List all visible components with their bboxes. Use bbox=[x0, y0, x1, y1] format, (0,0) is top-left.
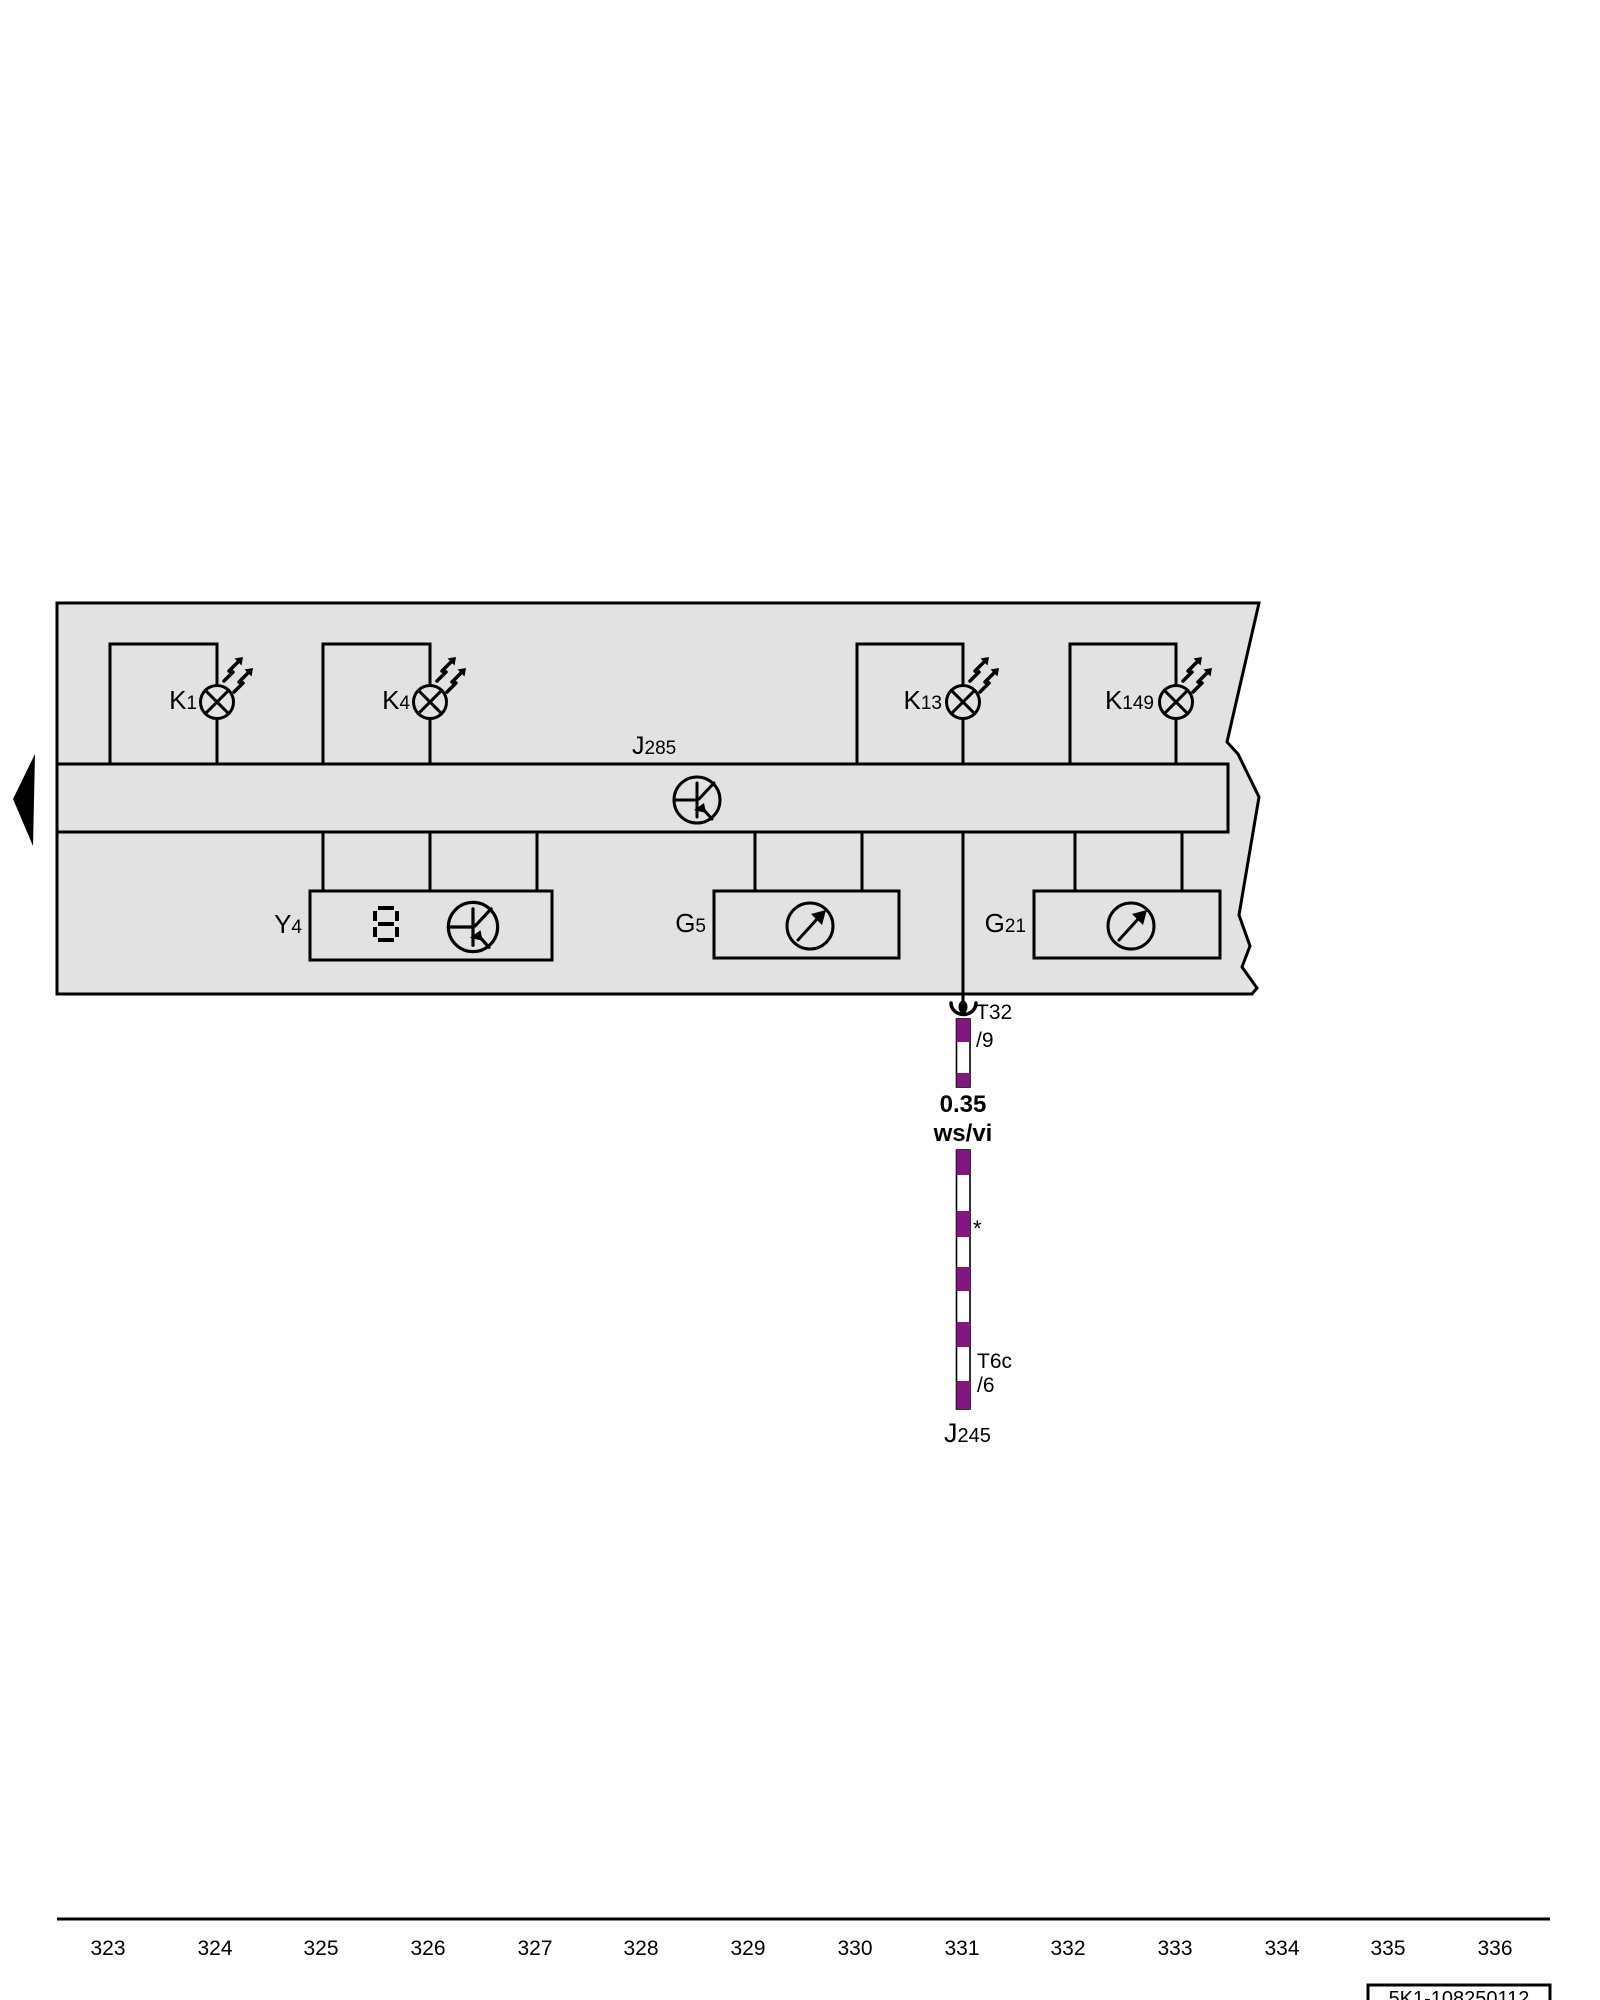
connector-top-pin: /9 bbox=[976, 1029, 994, 1052]
wiring-diagram-page: K1 K4 K13 K149 J285 Y4 G5 G21 T32 /9 0.3… bbox=[0, 0, 1600, 2000]
lamp-k1-label: K1 bbox=[77, 686, 197, 715]
display-unit-y4 bbox=[310, 891, 552, 960]
wire-footnote-mark: * bbox=[973, 1217, 982, 1241]
wire-spec-label: 0.35 ws/vi bbox=[893, 1090, 1033, 1148]
track-number: 323 bbox=[68, 1937, 148, 1960]
gauge-needle-icon bbox=[1108, 903, 1154, 949]
track-number: 333 bbox=[1135, 1937, 1215, 1960]
track-number: 335 bbox=[1348, 1937, 1428, 1960]
track-number: 328 bbox=[601, 1937, 681, 1960]
display-unit-label: Y4 bbox=[182, 910, 302, 939]
wiring-diagram-canvas bbox=[0, 0, 1600, 2000]
track-number: 326 bbox=[388, 1937, 468, 1960]
track-number: 327 bbox=[495, 1937, 575, 1960]
connector-socket-icon bbox=[951, 1001, 976, 1015]
connector-bottom-pin: /6 bbox=[977, 1374, 995, 1397]
connector-bottom-name: T6c bbox=[977, 1350, 1012, 1373]
gauge-needle-icon bbox=[787, 903, 833, 949]
connector-top-name: T32 bbox=[976, 1001, 1012, 1024]
wire-cross-section: 0.35 bbox=[893, 1090, 1033, 1119]
track-number: 325 bbox=[281, 1937, 361, 1960]
bus-bar-j285 bbox=[57, 764, 1228, 832]
continuation-arrow-icon bbox=[13, 754, 35, 846]
lamp-k13-label: K13 bbox=[820, 686, 942, 715]
lamp-k149-label: K149 bbox=[1010, 686, 1154, 715]
gauge-g21-label: G21 bbox=[886, 909, 1026, 938]
gauge-unit-g5 bbox=[714, 891, 899, 958]
track-number: 324 bbox=[175, 1937, 255, 1960]
wire-ws-vi-lower bbox=[957, 1150, 971, 1409]
instrument-cluster-icon bbox=[448, 902, 497, 951]
wire-ws-vi-upper bbox=[957, 1019, 971, 1087]
gauge-unit-g21 bbox=[1034, 891, 1220, 958]
track-number: 329 bbox=[708, 1937, 788, 1960]
track-number: 336 bbox=[1455, 1937, 1535, 1960]
instrument-cluster-icon bbox=[674, 777, 720, 823]
gauge-g5-label: G5 bbox=[586, 909, 706, 938]
destination-label: J245 bbox=[944, 1419, 991, 1449]
lamp-k4-label: K4 bbox=[290, 686, 410, 715]
bus-bar-label: J285 bbox=[632, 733, 676, 761]
track-number: 331 bbox=[922, 1937, 1002, 1960]
footer-code: 5K1-108250112 bbox=[1368, 1988, 1550, 2000]
wire-color-code: ws/vi bbox=[893, 1119, 1033, 1148]
track-number: 330 bbox=[815, 1937, 895, 1960]
track-number: 334 bbox=[1242, 1937, 1322, 1960]
track-number: 332 bbox=[1028, 1937, 1108, 1960]
